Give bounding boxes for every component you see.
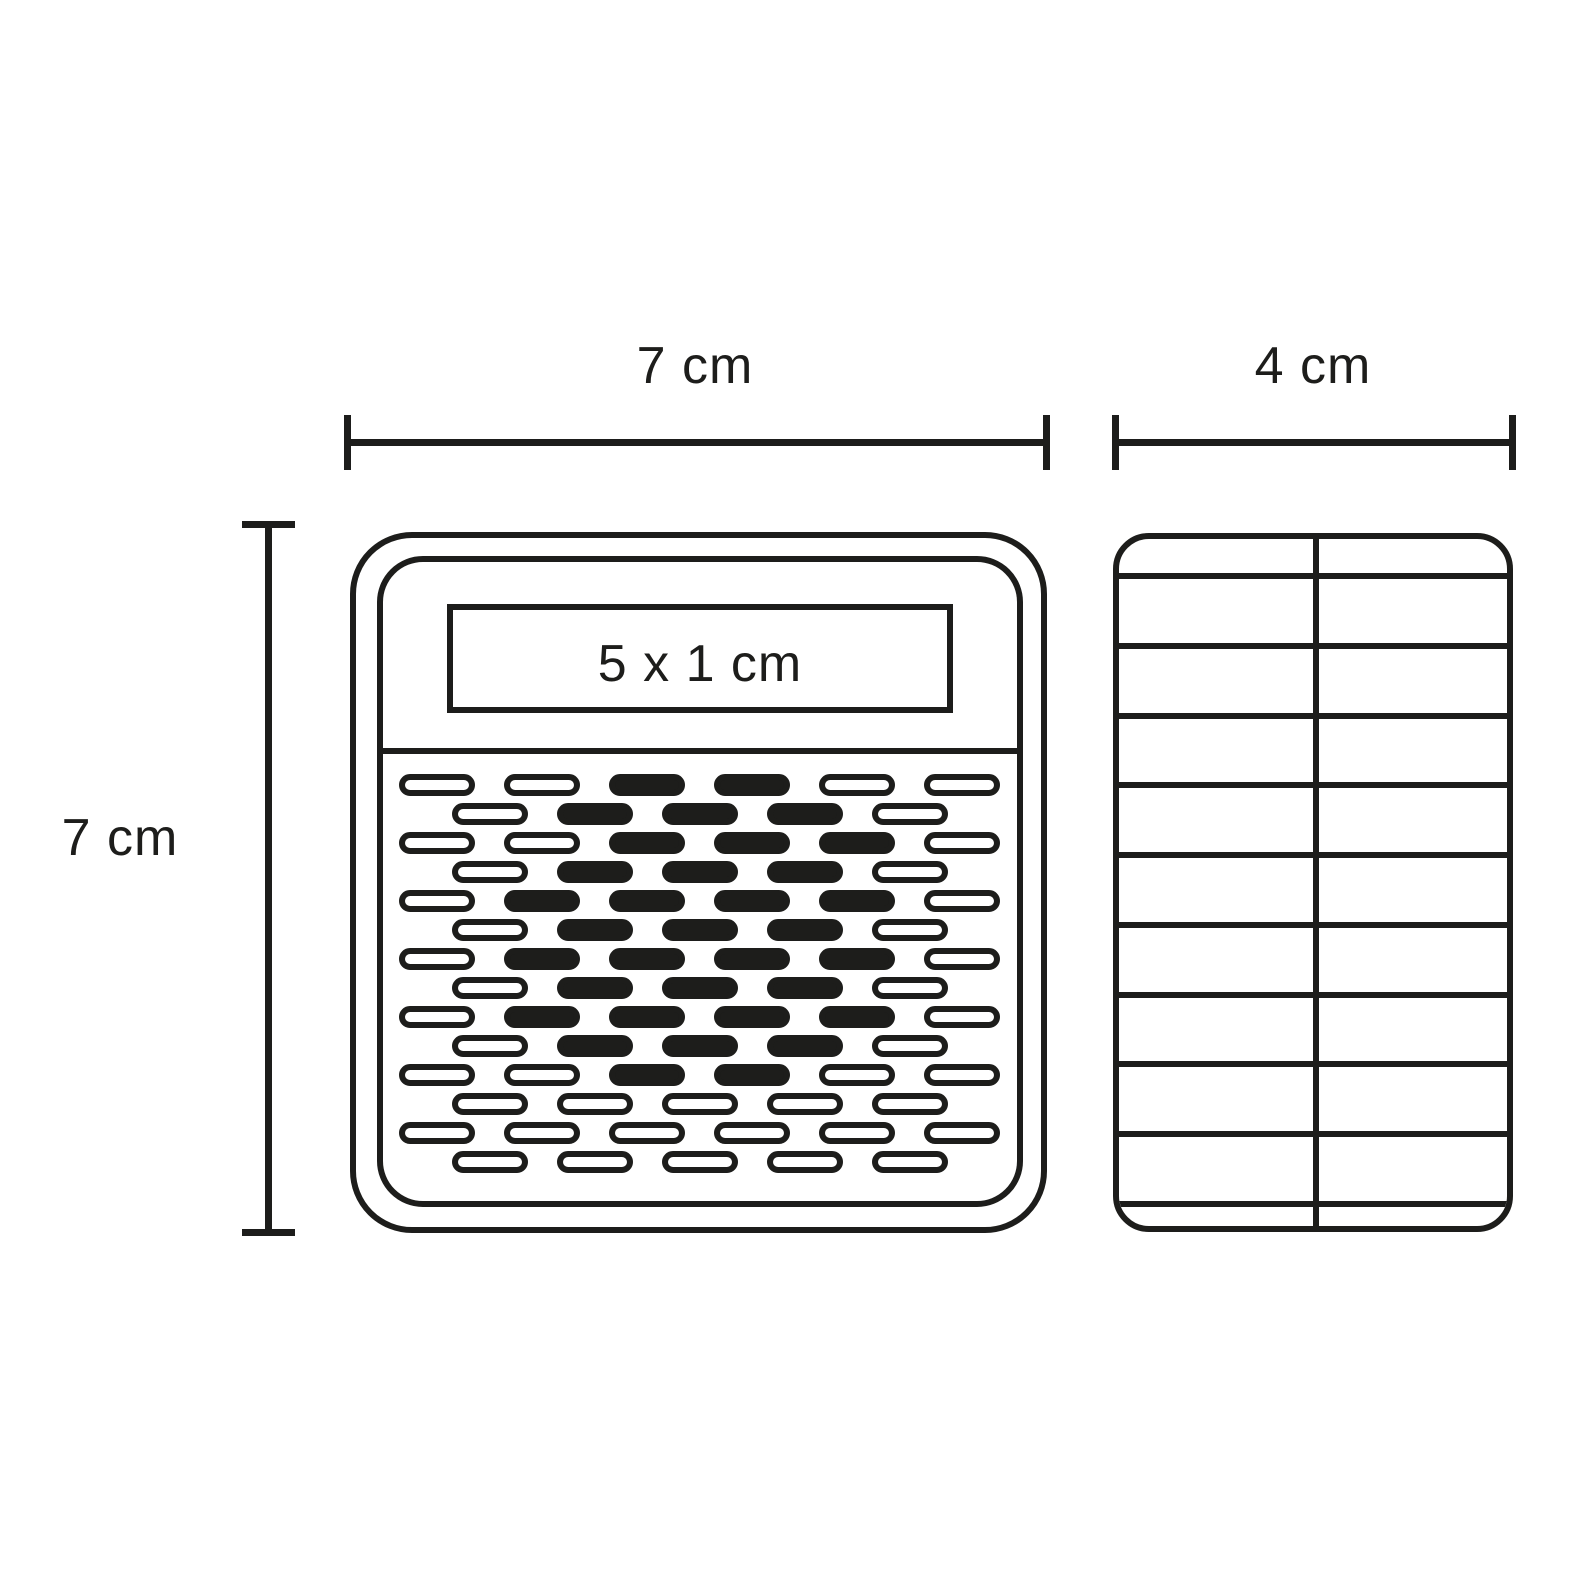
front-width-dimension-line (347, 439, 1047, 446)
side-width-dimension-line (1116, 439, 1513, 446)
front-height-dimension-tick-bottom (242, 1229, 295, 1236)
grille-pill-outline (872, 1035, 948, 1057)
grille-pill-outline (924, 1006, 1000, 1028)
grille-pill-outline (924, 774, 1000, 796)
grille-pill-outline (504, 774, 580, 796)
front-height-dimension-line (265, 523, 272, 1234)
grille-pill-outline (399, 832, 475, 854)
grille-pill-outline (714, 1122, 790, 1144)
grille-pill-filled (714, 774, 790, 796)
grille-pill-filled (662, 1035, 738, 1057)
grille-pill-filled (609, 890, 685, 912)
grille-pill-outline (504, 1122, 580, 1144)
grille-pill-outline (819, 1122, 895, 1144)
grille-pill-filled (714, 948, 790, 970)
grille-row-9 (399, 1006, 1000, 1028)
grille-pill-outline (924, 1122, 1000, 1144)
side-view-rib-line-7 (1113, 992, 1513, 998)
side-width-dimension-label: 4 cm (1113, 338, 1513, 394)
grille-pill-outline (452, 803, 528, 825)
front-height-dimension-label: 7 cm (20, 810, 220, 866)
grille-pill-outline (872, 977, 948, 999)
side-width-dimension-tick-right (1509, 415, 1516, 470)
grille-pill-filled (557, 1035, 633, 1057)
grille-pill-filled (609, 774, 685, 796)
grille-pill-filled (609, 832, 685, 854)
grille-row-14 (452, 1151, 948, 1173)
front-width-dimension-tick-left (344, 415, 351, 470)
grille-pill-outline (399, 890, 475, 912)
grille-pill-filled (819, 948, 895, 970)
grille-pill-filled (609, 948, 685, 970)
grille-pill-outline (924, 832, 1000, 854)
grille-pill-filled (557, 977, 633, 999)
front-width-dimension-label: 7 cm (345, 338, 1045, 394)
grille-pill-outline (452, 1093, 528, 1115)
grille-pill-filled (767, 977, 843, 999)
grille-pill-filled (714, 1064, 790, 1086)
grille-pill-filled (819, 890, 895, 912)
grille-row-3 (399, 832, 1000, 854)
grille-pill-outline (399, 774, 475, 796)
side-width-dimension-tick-left (1112, 415, 1119, 470)
front-width-dimension-tick-right (1043, 415, 1050, 470)
grille-row-11 (399, 1064, 1000, 1086)
dimension-diagram: 7 cm 4 cm 7 cm 5 x 1 cm (0, 0, 1575, 1575)
grille-pill-filled (609, 1006, 685, 1028)
grille-pill-filled (714, 832, 790, 854)
grille-pill-filled (662, 977, 738, 999)
side-view-rib-line-8 (1113, 1061, 1513, 1067)
display-size-label: 5 x 1 cm (598, 624, 803, 694)
grille-pill-filled (714, 1006, 790, 1028)
side-view-rib-line-3 (1113, 713, 1513, 719)
grille-pill-outline (399, 1064, 475, 1086)
front-height-dimension-tick-top (242, 521, 295, 528)
grille-pill-filled (662, 919, 738, 941)
grille-pill-filled (767, 803, 843, 825)
device-side-view (1113, 533, 1513, 1232)
grille-pill-outline (819, 774, 895, 796)
grille-pill-filled (767, 861, 843, 883)
grille-pill-outline (452, 919, 528, 941)
grille-pill-filled (557, 861, 633, 883)
grille-pill-filled (662, 803, 738, 825)
grille-row-13 (399, 1122, 1000, 1144)
grille-pill-outline (452, 861, 528, 883)
grille-pill-outline (557, 1093, 633, 1115)
grille-pill-filled (819, 832, 895, 854)
grille-pill-outline (452, 1035, 528, 1057)
side-view-rib-line-4 (1113, 782, 1513, 788)
side-view-rib-line-6 (1113, 922, 1513, 928)
device-display: 5 x 1 cm (447, 604, 953, 713)
grille-row-4 (452, 861, 948, 883)
grille-pill-filled (557, 919, 633, 941)
grille-row-5 (399, 890, 1000, 912)
grille-pill-outline (872, 1093, 948, 1115)
grille-pill-outline (767, 1093, 843, 1115)
grille-row-10 (452, 1035, 948, 1057)
grille-row-6 (452, 919, 948, 941)
grille-pill-outline (609, 1122, 685, 1144)
grille-pill-outline (452, 977, 528, 999)
grille-pill-filled (714, 890, 790, 912)
grille-pill-filled (504, 948, 580, 970)
grille-row-7 (399, 948, 1000, 970)
side-view-rib-line-9 (1113, 1131, 1513, 1137)
grille-pill-outline (662, 1093, 738, 1115)
grille-pill-outline (399, 1122, 475, 1144)
grille-pill-outline (872, 861, 948, 883)
grille-pill-outline (452, 1151, 528, 1173)
side-view-rib-line-1 (1113, 573, 1513, 579)
side-view-rib-line-5 (1113, 852, 1513, 858)
grille-pill-filled (504, 1006, 580, 1028)
grille-pill-outline (504, 832, 580, 854)
grille-pill-outline (872, 1151, 948, 1173)
grille-pill-outline (504, 1064, 580, 1086)
side-view-rib-line-2 (1113, 643, 1513, 649)
grille-row-8 (452, 977, 948, 999)
grille-row-1 (399, 774, 1000, 796)
grille-pill-filled (767, 1035, 843, 1057)
grille-pill-filled (609, 1064, 685, 1086)
grille-pill-outline (872, 919, 948, 941)
grille-pill-filled (504, 890, 580, 912)
grille-pill-outline (767, 1151, 843, 1173)
grille-pill-filled (662, 861, 738, 883)
grille-pill-outline (399, 1006, 475, 1028)
grille-pill-outline (924, 948, 1000, 970)
grille-pill-outline (924, 890, 1000, 912)
grille-pill-filled (767, 919, 843, 941)
speaker-grille (383, 754, 1016, 1200)
grille-pill-outline (557, 1151, 633, 1173)
grille-row-12 (452, 1093, 948, 1115)
grille-pill-filled (557, 803, 633, 825)
grille-row-2 (452, 803, 948, 825)
grille-pill-outline (662, 1151, 738, 1173)
grille-pill-filled (819, 1006, 895, 1028)
grille-pill-outline (872, 803, 948, 825)
side-view-center-line (1313, 533, 1319, 1232)
side-view-rib-line-10 (1113, 1201, 1513, 1207)
grille-pill-outline (399, 948, 475, 970)
grille-pill-outline (924, 1064, 1000, 1086)
grille-pill-outline (819, 1064, 895, 1086)
